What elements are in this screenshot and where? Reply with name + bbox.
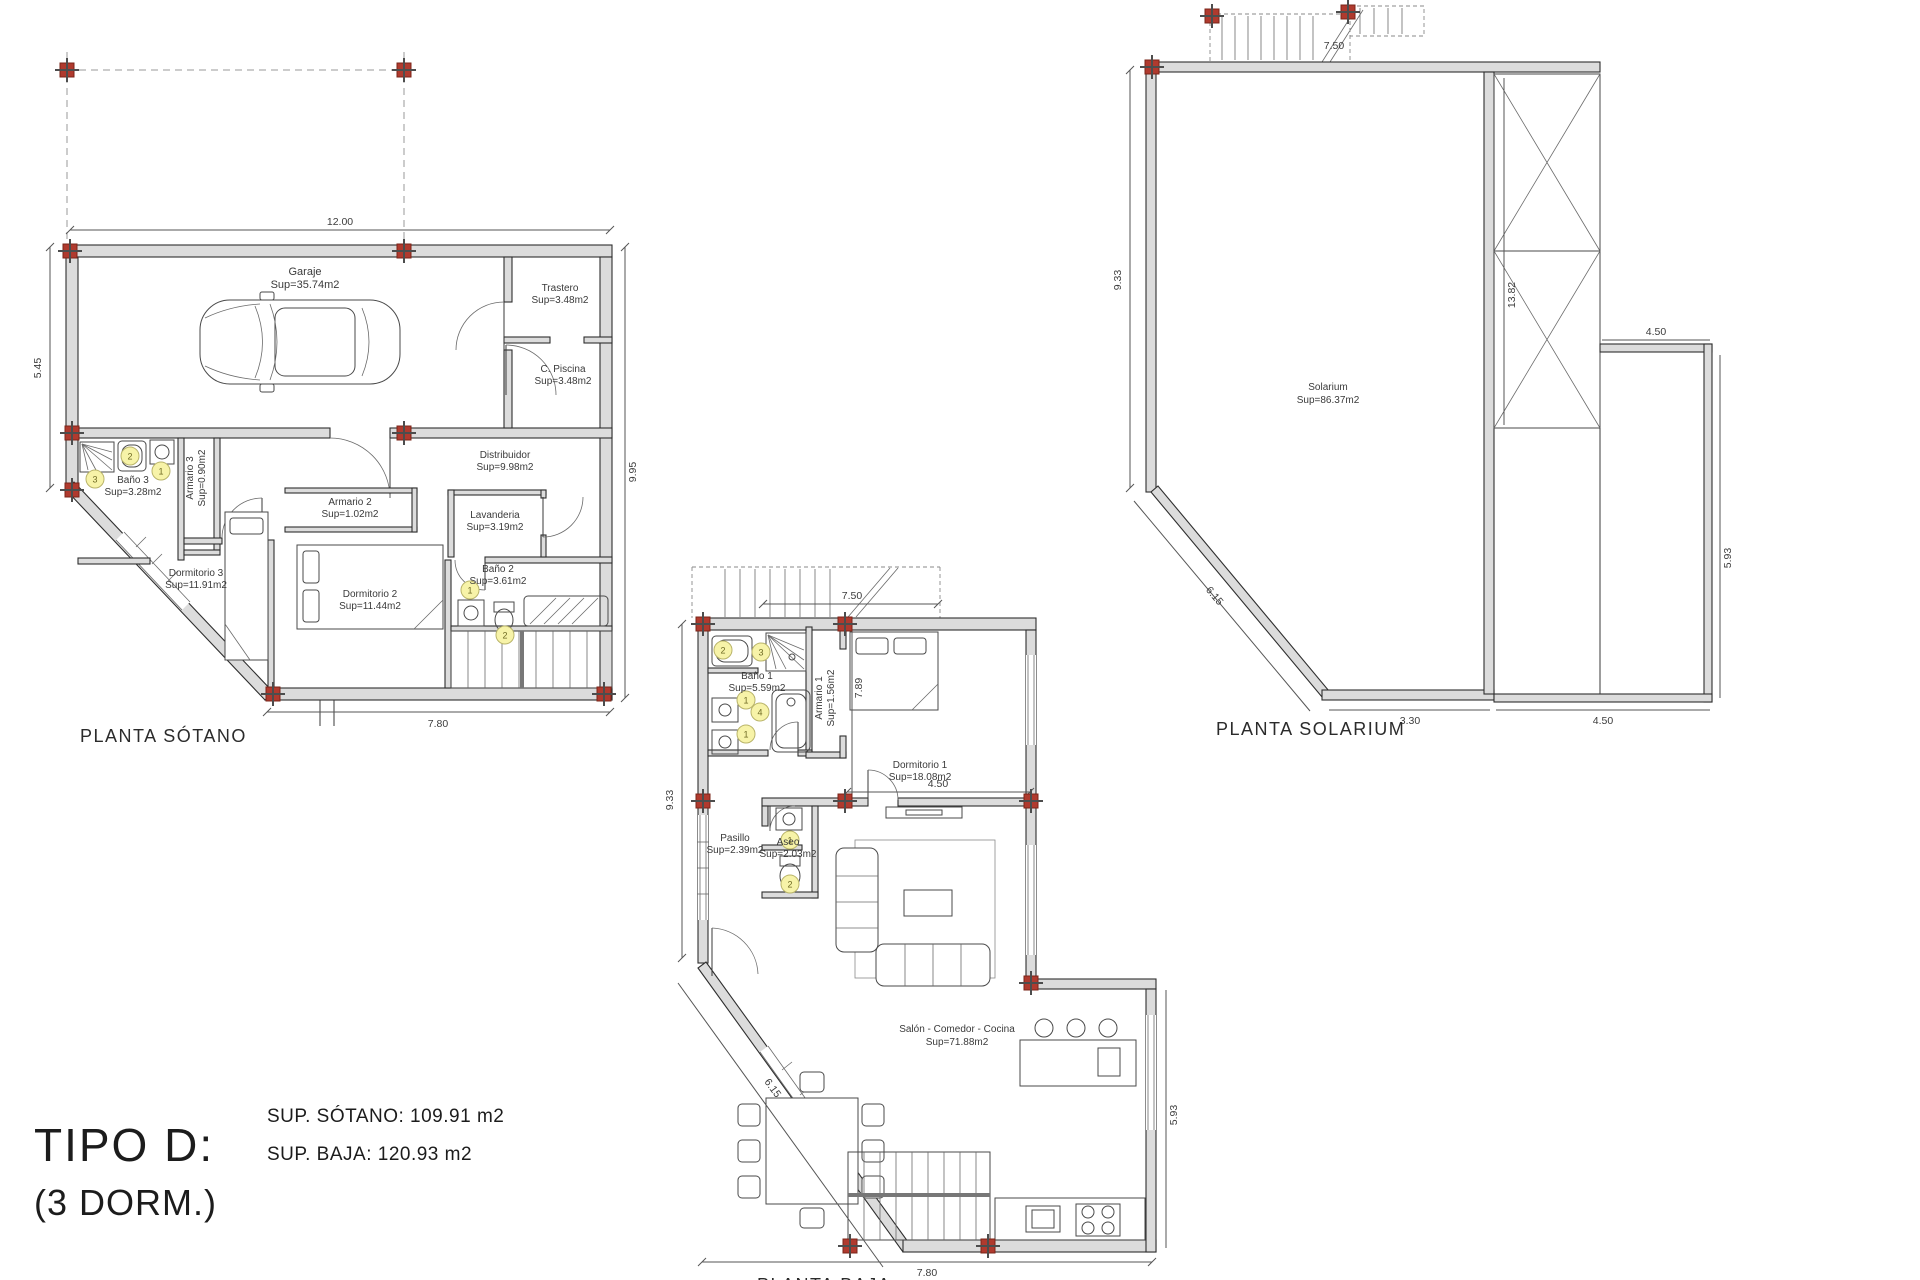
pergola-lattice [1494,74,1600,428]
wall [412,488,417,532]
wall [762,806,768,826]
svg-text:Sup=0.90m2: Sup=0.90m2 [197,449,208,506]
registration-cross [60,421,84,445]
svg-text:Armario 1: Armario 1 [814,676,825,720]
wall [485,557,612,563]
dim-label: 7.89 [853,678,865,699]
wall [214,438,220,550]
planta-baja-plan: 7.50 [664,567,1180,1280]
kitchen-counter [995,1198,1145,1240]
stairs [451,631,612,688]
wall [448,490,454,557]
room-sup-dormitorio2: Sup=11.44m2 [339,601,401,612]
coffee-table [904,890,952,916]
room-sup-garaje: Sup=35.74m2 [271,279,340,291]
svg-text:2: 2 [787,880,792,890]
surface-baja: SUP. BAJA: 120.93 m2 [267,1144,472,1166]
room-sup-solarium: Sup=86.37m2 [1297,395,1360,406]
dim-label: 9.33 [1112,270,1124,291]
floorplan-drawing: 12.00 [0,0,1920,1280]
registration-cross [838,1234,862,1258]
wall [541,535,546,557]
wall [66,245,612,257]
window [1146,1015,1156,1130]
wall [1036,979,1156,989]
dim-label: 5.45 [32,358,44,379]
room-label-solarium: Solarium [1308,382,1347,393]
wall [1146,72,1156,492]
wall [1322,690,1494,700]
wall [504,257,512,302]
svg-text:1: 1 [158,467,163,477]
plan-title-baja: PLANTA BAJA [757,1275,891,1280]
room-label-dormitorio3: Dormitorio 3 [169,568,224,579]
tv-unit [886,807,962,818]
room-sup-dormitorio3: Sup=11.91m2 [165,580,227,591]
room-sup-lavanderia: Sup=3.19m2 [467,522,524,533]
room-sup-trastero: Sup=3.48m2 [532,295,589,306]
dim-label: 7.50 [842,590,863,602]
wall [445,560,451,688]
registration-cross [1019,789,1043,813]
window [697,815,709,920]
dim-label: 13.82 [1506,282,1518,308]
room-label-bano3: Baño 3 [117,475,149,486]
room-label-garaje: Garaje [288,266,321,278]
svg-text:2: 2 [502,631,507,641]
fixture-badge: 3 [752,643,770,661]
room-label-bano2: Baño 2 [482,564,514,575]
room-label-pasillo: Pasillo [720,833,750,844]
bed [297,545,443,629]
bed [225,512,268,660]
registration-cross [1200,4,1224,28]
wall-chamfer [1151,486,1329,697]
svg-text:3: 3 [758,648,763,658]
wall [541,490,546,498]
svg-text:Armario 3: Armario 3 [185,456,196,500]
type-subtitle: (3 DORM.) [34,1182,217,1224]
registration-cross [691,789,715,813]
sink-icon [150,440,174,464]
wall [600,257,612,700]
surface-sotano: SUP. SÓTANO: 109.91 m2 [267,1106,504,1128]
wall [285,527,417,532]
svg-text:1: 1 [467,586,472,596]
stairs [725,568,898,617]
wall [285,488,417,493]
registration-cross [1140,55,1164,79]
dim-label: 9.33 [664,790,676,811]
dim-label: 4.50 [928,778,949,790]
wall [1484,72,1494,694]
wall [840,736,846,758]
registration-cross [55,58,79,82]
svg-text:2: 2 [127,452,132,462]
registration-cross [392,239,416,263]
registration-cross [833,789,857,813]
wall [448,490,546,495]
sofa [876,944,990,986]
wall [265,688,612,700]
room-sup-cpiscina: Sup=3.48m2 [535,376,592,387]
registration-cross [392,58,416,82]
wall [903,1240,1156,1252]
shower-icon [80,442,114,472]
wall [390,428,612,438]
wall [898,798,1036,806]
svg-text:3: 3 [92,475,97,485]
wall [178,438,184,560]
dim-label: 7.80 [917,1267,938,1279]
fixture-badge: 2 [496,626,514,644]
room-label-salon: Salón - Comedor - Cocina [899,1024,1015,1035]
wall [184,538,222,544]
wall [1494,694,1712,702]
room-label-armario2: Armario 2 [328,497,372,508]
svg-text:1: 1 [743,730,748,740]
room-sup-pasillo: Sup=2.39m2 [707,845,764,856]
wall [66,428,330,438]
dim-label: 9.95 [627,462,639,483]
room-label-bano1: Baño 1 [741,671,773,682]
wall [66,257,78,490]
sofa [836,848,878,952]
fixture-badge: 2 [781,875,799,893]
sink-icon [712,698,738,722]
wall [78,558,150,564]
room-sup-bano3: Sup=3.28m2 [105,487,162,498]
plan-title-sotano: PLANTA SÓTANO [80,725,247,746]
stairs [1210,6,1424,62]
dim-label: 4.50 [1646,326,1667,338]
room-label-dormitorio1: Dormitorio 1 [893,760,948,771]
dim-label: 5.93 [1168,1105,1180,1126]
svg-text:2: 2 [720,646,725,656]
room-sup-salon: Sup=71.88m2 [926,1037,989,1048]
wall [504,350,512,428]
wall [1704,344,1712,702]
wall [504,337,550,343]
stairs [848,1152,990,1240]
room-sup-aseo: Sup=2.03m2 [760,849,817,860]
dim-label: 7.50 [1324,40,1345,52]
registration-cross [1019,971,1043,995]
plan-title-solarium: PLANTA SOLARIUM [1216,719,1405,739]
svg-text:4: 4 [757,708,762,718]
room-label-distribuidor: Distribuidor [480,450,531,461]
room-label-aseo: Aseo [777,837,800,848]
fixture-badge: 1 [152,462,170,480]
planta-solarium-plan: 7.50 Solarium Sup=86.37m2 9.33 6.15 [1112,0,1734,739]
room-label-armario3: Armario 3 Sup=0.90m2 [185,449,208,506]
wall [268,540,274,690]
room-sup-armario2: Sup=1.02m2 [322,509,379,520]
room-sup-distribuidor: Sup=9.98m2 [477,462,534,473]
fixture-badge: 2 [714,641,732,659]
svg-text:1: 1 [743,696,748,706]
bathtub-icon [524,596,608,626]
dim-label: 12.00 [327,216,353,228]
room-label-trastero: Trastero [542,283,579,294]
dining-table [738,1072,884,1228]
wall [451,626,612,631]
room-label-lavanderia: Lavanderia [470,510,520,521]
car-top-view [200,292,400,392]
wall [698,618,1036,630]
room-sup-bano1: Sup=5.59m2 [729,683,786,694]
fixture-badge: 1 [737,725,755,743]
type-title: TIPO D: [34,1118,214,1172]
registration-cross [392,421,416,445]
window [1026,845,1036,955]
registration-cross [691,612,715,636]
wall [184,550,220,555]
room-sup-bano2: Sup=3.61m2 [470,576,527,587]
fixture-badge: 2 [121,447,139,465]
room-label-dormitorio2: Dormitorio 2 [343,589,398,600]
dim-label: 5.93 [1722,548,1734,569]
sink-icon [458,600,484,626]
svg-text:Sup=1.56m2: Sup=1.56m2 [826,669,837,726]
window [1026,655,1036,745]
room-label-cpiscina: C. Piscina [540,364,585,375]
wall [584,337,612,343]
shower-icon [766,633,806,671]
planta-sotano-plan: 12.00 [32,52,639,746]
bathtub-icon [772,690,810,752]
registration-cross [976,1234,1000,1258]
room-label-armario1: Armario 1 Sup=1.56m2 [814,669,837,726]
dim-label: 7.80 [428,718,449,730]
kitchen-island [1020,1019,1136,1086]
dim-label: 4.50 [1593,715,1614,727]
fixture-badge: 3 [86,470,104,488]
fixture-badge: 4 [751,703,769,721]
wall [1146,62,1600,72]
floorplan-sheet: 12.00 [0,0,1920,1280]
wall [1600,344,1712,352]
